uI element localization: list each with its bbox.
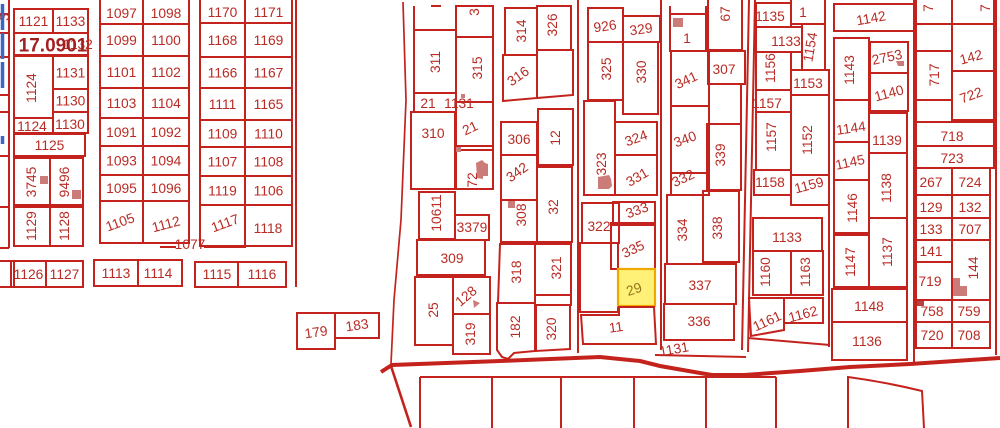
svg-text:17.0901: 17.0901 (19, 36, 88, 57)
svg-text:1167: 1167 (254, 65, 284, 80)
svg-text:708: 708 (957, 328, 980, 343)
svg-text:132: 132 (958, 200, 981, 215)
svg-text:1106: 1106 (254, 183, 284, 198)
svg-text:1124: 1124 (24, 73, 39, 103)
svg-text:1113: 1113 (102, 266, 131, 281)
svg-text:307: 307 (712, 62, 735, 77)
svg-text:1130: 1130 (55, 117, 85, 132)
svg-text:1109: 1109 (208, 126, 238, 141)
svg-text:322: 322 (587, 219, 610, 234)
svg-text:1148: 1148 (854, 299, 884, 314)
svg-text:1157: 1157 (752, 96, 782, 111)
svg-text:310: 310 (421, 126, 444, 141)
svg-text:1096: 1096 (151, 181, 182, 196)
svg-text:326: 326 (545, 13, 560, 36)
svg-text:1153: 1153 (793, 76, 823, 91)
svg-text:330: 330 (634, 60, 649, 83)
svg-text:1118: 1118 (254, 221, 283, 236)
svg-text:1100: 1100 (151, 33, 181, 48)
svg-text:338: 338 (710, 216, 725, 239)
svg-text:1125: 1125 (35, 138, 65, 153)
svg-text:336: 336 (687, 314, 710, 329)
svg-text:718: 718 (940, 129, 963, 144)
svg-text:1139: 1139 (872, 133, 902, 148)
svg-text:10611: 10611 (429, 194, 444, 231)
svg-text:311: 311 (428, 51, 443, 73)
svg-text:1095: 1095 (106, 181, 137, 196)
svg-text:1: 1 (683, 31, 691, 46)
svg-text:1: 1 (799, 5, 807, 20)
svg-text:1111: 1111 (209, 97, 237, 112)
svg-text:1170: 1170 (208, 5, 238, 20)
svg-text:1152: 1152 (800, 125, 815, 155)
svg-text:1127: 1127 (50, 267, 80, 282)
svg-text:32: 32 (546, 199, 561, 214)
svg-text:3: 3 (467, 8, 482, 16)
svg-text:319: 319 (463, 322, 478, 345)
svg-text:1091: 1091 (106, 125, 137, 140)
svg-text:1114: 1114 (144, 266, 173, 281)
svg-text:1137: 1137 (880, 237, 895, 267)
svg-text:1138: 1138 (879, 173, 894, 203)
svg-text:12: 12 (548, 130, 563, 145)
svg-text:309: 309 (440, 251, 463, 266)
svg-text:7: 7 (978, 4, 993, 12)
svg-text:759: 759 (957, 304, 980, 319)
svg-text:1133: 1133 (772, 230, 802, 245)
svg-text:21: 21 (420, 96, 435, 111)
svg-text:1143: 1143 (842, 55, 857, 85)
svg-text:325: 325 (599, 57, 614, 80)
svg-text:141: 141 (919, 244, 942, 259)
svg-text:1101: 1101 (107, 65, 137, 80)
svg-text:320: 320 (544, 317, 559, 340)
svg-text:724: 724 (958, 175, 981, 190)
svg-text:1104: 1104 (151, 96, 181, 111)
svg-text:1147: 1147 (843, 247, 858, 277)
svg-text:1136: 1136 (852, 334, 882, 349)
svg-text:1163: 1163 (798, 257, 813, 287)
svg-text:182: 182 (508, 315, 523, 338)
svg-text:267: 267 (919, 175, 942, 190)
svg-text:1168: 1168 (208, 33, 238, 48)
svg-text:183: 183 (345, 316, 370, 334)
svg-text:1093: 1093 (106, 153, 137, 168)
svg-text:329: 329 (629, 20, 654, 38)
svg-text:1116: 1116 (248, 267, 277, 282)
svg-text:717: 717 (927, 63, 942, 86)
svg-text:1102: 1102 (151, 65, 181, 80)
svg-text:144: 144 (966, 256, 981, 279)
svg-text:9496: 9496 (57, 166, 72, 197)
svg-text:1146: 1146 (845, 193, 860, 223)
svg-text:1108: 1108 (254, 154, 284, 169)
svg-text:1107: 1107 (208, 154, 238, 169)
svg-text:339: 339 (713, 143, 728, 166)
svg-text:1156: 1156 (763, 53, 778, 83)
svg-text:133: 133 (919, 222, 942, 237)
svg-text:1133: 1133 (56, 14, 86, 29)
svg-text:758: 758 (920, 304, 943, 319)
svg-text:337: 337 (688, 278, 711, 293)
svg-text:129: 129 (919, 200, 942, 215)
svg-text:321: 321 (549, 256, 564, 279)
svg-text:1115: 1115 (203, 267, 232, 282)
svg-text:719: 719 (918, 274, 941, 289)
svg-text:315: 315 (470, 56, 485, 79)
svg-text:1165: 1165 (254, 97, 284, 112)
svg-text:707: 707 (958, 222, 981, 237)
svg-text:1157: 1157 (764, 122, 779, 152)
svg-text:179: 179 (304, 323, 329, 341)
svg-text:926: 926 (593, 17, 618, 35)
svg-text:1110: 1110 (254, 126, 283, 141)
svg-text:1094: 1094 (151, 153, 182, 168)
svg-text:308: 308 (514, 203, 529, 226)
svg-text:1103: 1103 (107, 96, 137, 111)
svg-text:1130: 1130 (56, 93, 86, 108)
svg-text:11: 11 (608, 319, 624, 336)
svg-text:723: 723 (940, 151, 963, 166)
svg-text:1158: 1158 (755, 175, 785, 190)
svg-text:67: 67 (718, 6, 733, 21)
svg-text:1121: 1121 (19, 14, 49, 29)
svg-text:1166: 1166 (208, 65, 238, 80)
svg-text:334: 334 (675, 218, 690, 241)
svg-text:1133: 1133 (771, 34, 801, 49)
svg-text:720: 720 (920, 328, 943, 343)
svg-text:323: 323 (594, 152, 609, 175)
svg-text:1131: 1131 (444, 96, 474, 111)
svg-text:1171: 1171 (254, 5, 284, 20)
svg-text:3379: 3379 (457, 220, 488, 235)
svg-text:1128: 1128 (57, 211, 72, 241)
svg-text:7: 7 (921, 4, 936, 12)
svg-text:1169: 1169 (254, 33, 284, 48)
svg-text:1126: 1126 (14, 267, 44, 282)
svg-text:1099: 1099 (106, 33, 137, 48)
svg-text:314: 314 (514, 19, 529, 42)
svg-text:1135: 1135 (755, 9, 785, 24)
svg-text:1098: 1098 (151, 6, 182, 21)
svg-text:1131: 1131 (56, 65, 86, 80)
svg-text:1129: 1129 (24, 211, 39, 241)
svg-text:1092: 1092 (151, 125, 182, 140)
svg-text:25: 25 (426, 302, 441, 318)
svg-text:306: 306 (507, 132, 530, 147)
svg-text:1097: 1097 (106, 6, 137, 21)
svg-text:3745: 3745 (24, 166, 39, 197)
svg-text:1160: 1160 (758, 257, 773, 287)
svg-text:318: 318 (509, 260, 524, 283)
svg-text:1119: 1119 (208, 183, 237, 198)
svg-text:1124: 1124 (17, 119, 47, 134)
